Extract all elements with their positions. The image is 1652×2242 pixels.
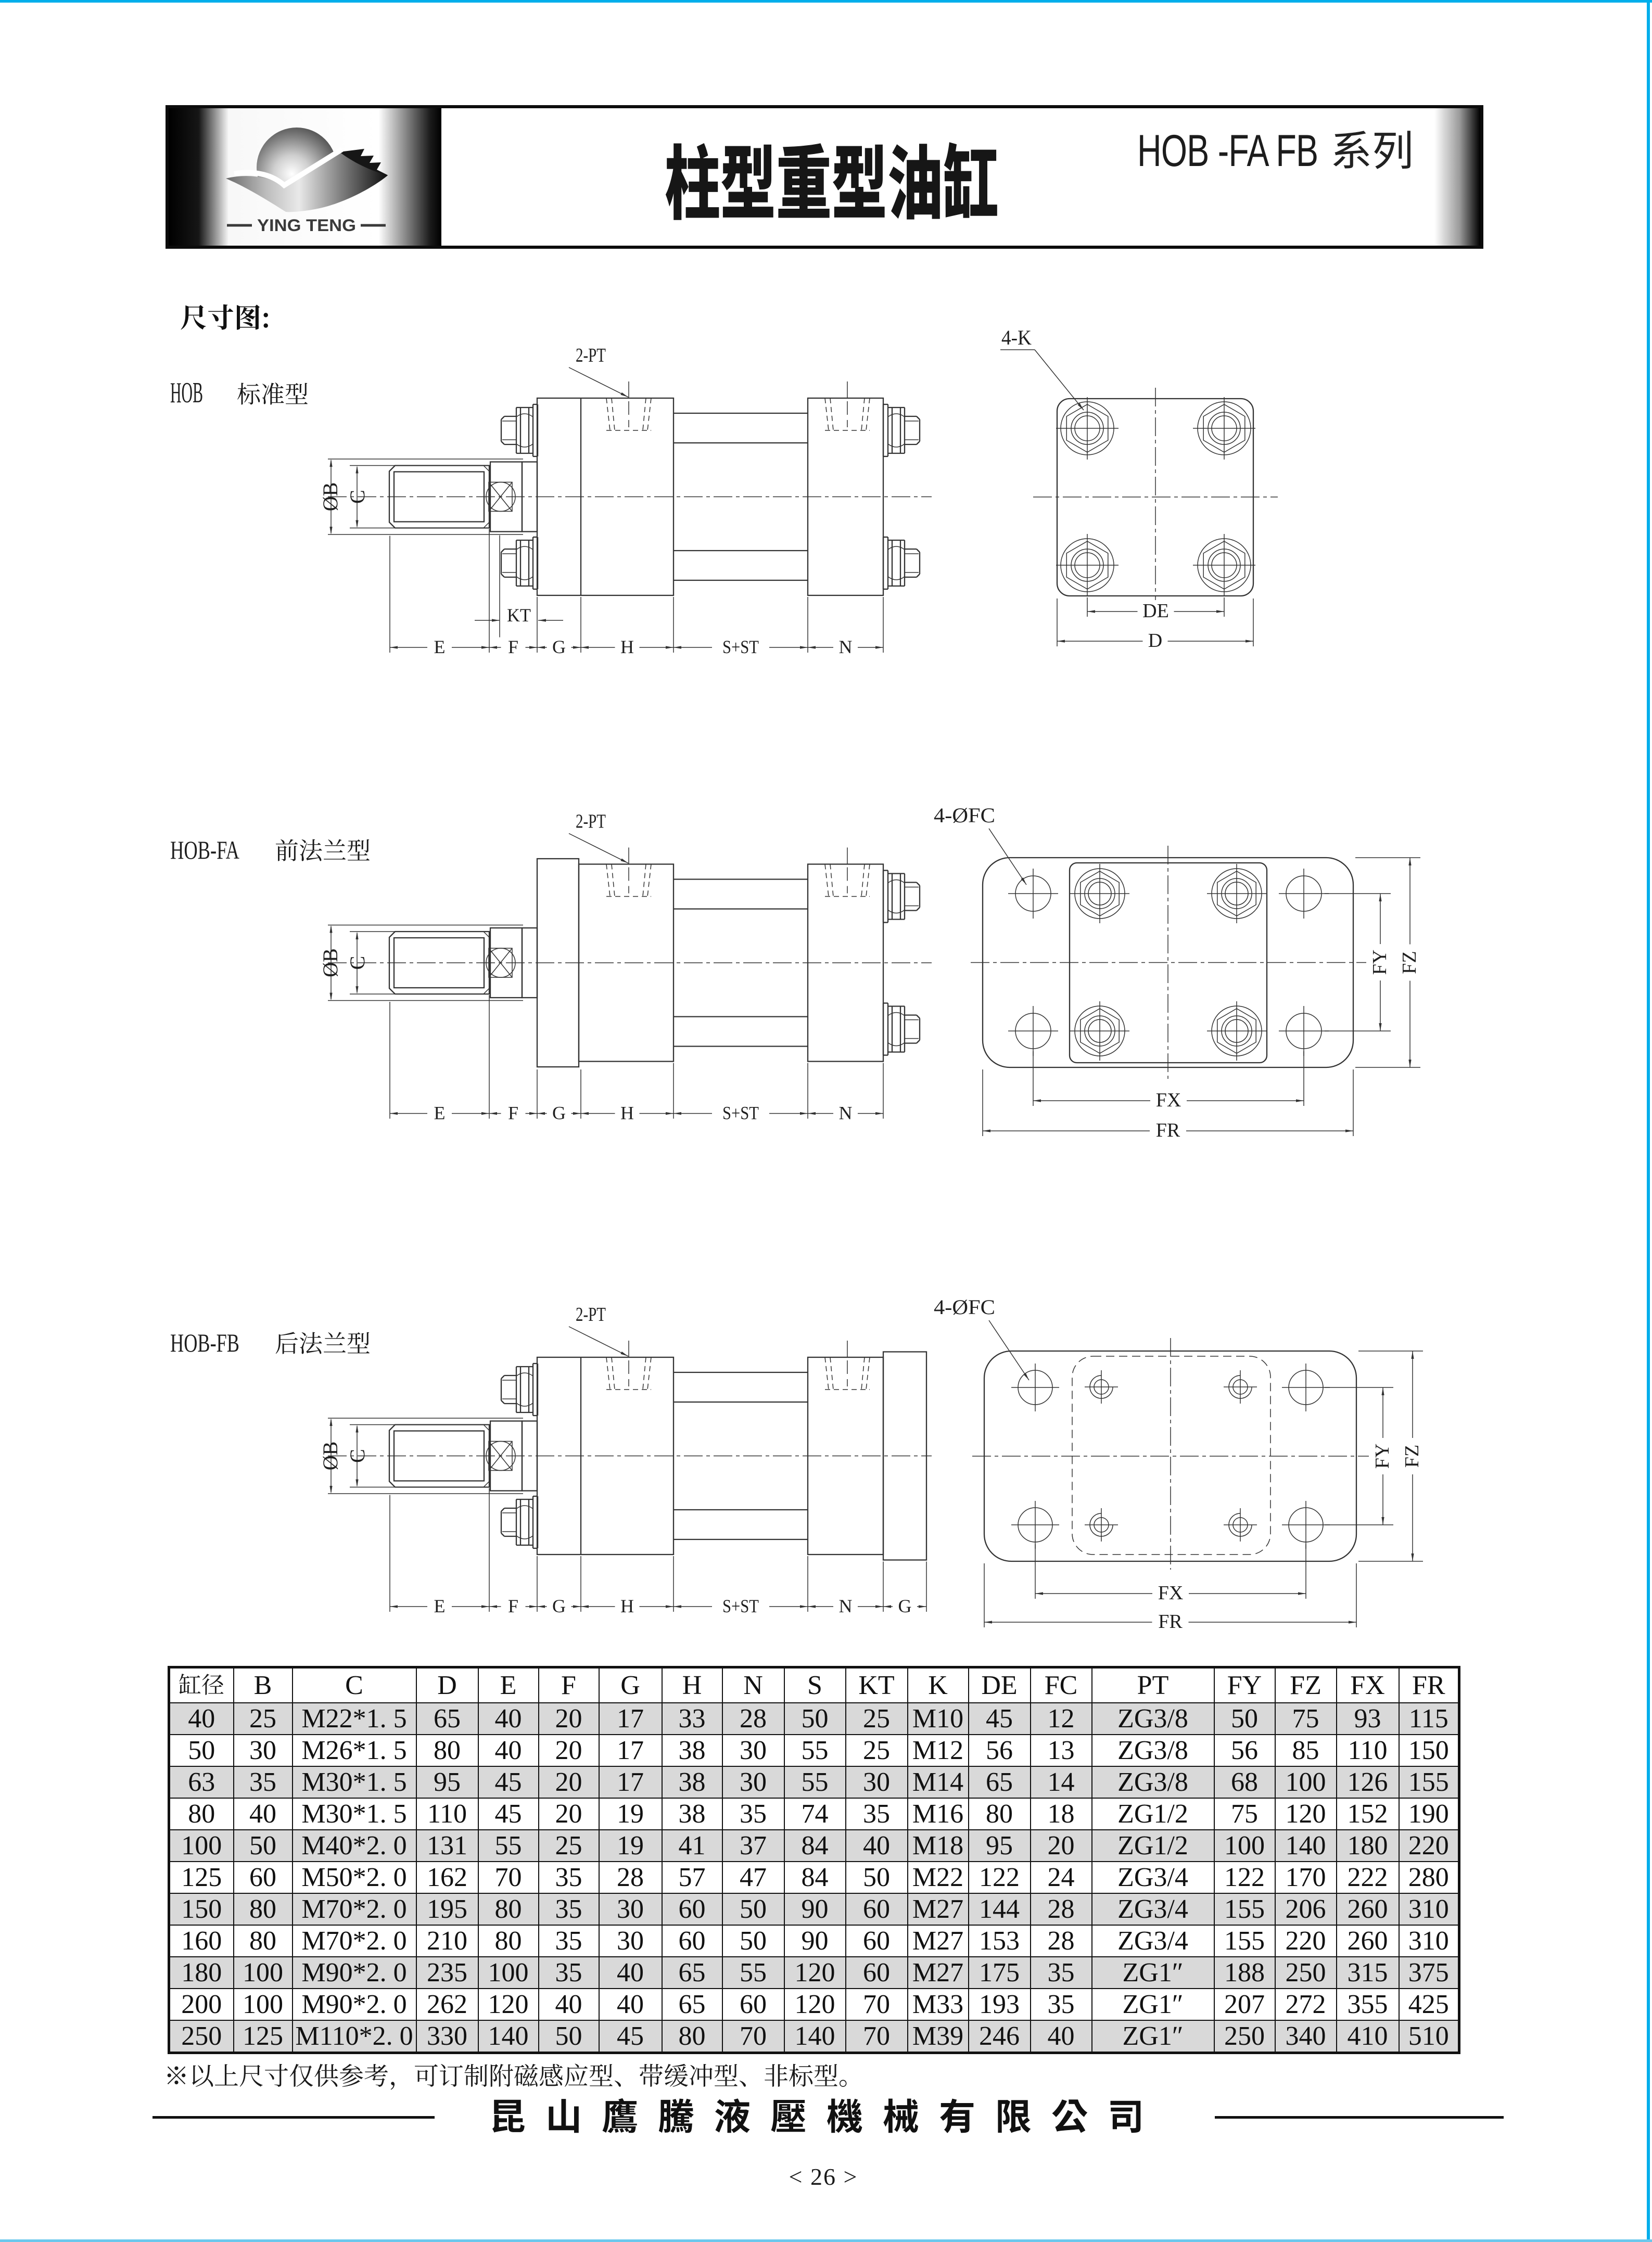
svg-text:G: G (552, 1596, 566, 1616)
svg-text:KT: KT (507, 605, 531, 626)
svg-text:N: N (839, 1596, 853, 1616)
svg-text:E: E (434, 1103, 446, 1124)
svg-text:C: C (346, 490, 369, 504)
svg-text:2-PT: 2-PT (576, 345, 606, 366)
svg-text:HOB-FA: HOB-FA (170, 835, 239, 864)
svg-text:FZ: FZ (1401, 1445, 1423, 1468)
svg-text:S+ST: S+ST (722, 1596, 759, 1616)
svg-text:2-PT: 2-PT (576, 811, 606, 833)
svg-text:F: F (508, 1596, 518, 1616)
svg-text:F: F (508, 1103, 518, 1124)
svg-text:FX: FX (1156, 1089, 1181, 1111)
svg-text:S+ST: S+ST (722, 1103, 759, 1124)
svg-text:H: H (620, 636, 634, 657)
svg-text:C: C (346, 956, 369, 970)
svg-text:FX: FX (1158, 1582, 1184, 1604)
svg-text:4-K: 4-K (1001, 326, 1032, 349)
svg-text:HOB: HOB (170, 377, 203, 409)
svg-text:FY: FY (1369, 950, 1391, 975)
svg-text:DE: DE (1142, 600, 1169, 622)
svg-text:ØB: ØB (319, 482, 342, 512)
svg-text:H: H (620, 1103, 634, 1124)
svg-text:ØB: ØB (319, 948, 342, 977)
svg-text:C: C (346, 1449, 369, 1463)
svg-text:G: G (552, 1103, 566, 1124)
svg-text:F: F (508, 636, 518, 657)
svg-text:ØB: ØB (319, 1442, 342, 1471)
svg-text:H: H (620, 1596, 634, 1616)
svg-text:N: N (839, 1103, 853, 1124)
svg-text:FR: FR (1156, 1119, 1180, 1141)
svg-text:FR: FR (1158, 1611, 1183, 1633)
svg-text:FZ: FZ (1399, 951, 1420, 974)
svg-text:E: E (434, 1596, 446, 1616)
svg-text:E: E (434, 636, 446, 657)
svg-text:2-PT: 2-PT (576, 1304, 606, 1326)
svg-text:D: D (1148, 630, 1162, 652)
svg-text:FY: FY (1371, 1444, 1393, 1469)
svg-text:S+ST: S+ST (722, 636, 759, 657)
svg-text:G: G (552, 636, 566, 657)
svg-text:4-ØFC: 4-ØFC (934, 804, 995, 827)
svg-text:4-ØFC: 4-ØFC (934, 1295, 995, 1319)
svg-text:HOB-FB: HOB-FB (170, 1328, 239, 1357)
svg-text:N: N (839, 636, 853, 657)
svg-text:G: G (898, 1596, 912, 1616)
